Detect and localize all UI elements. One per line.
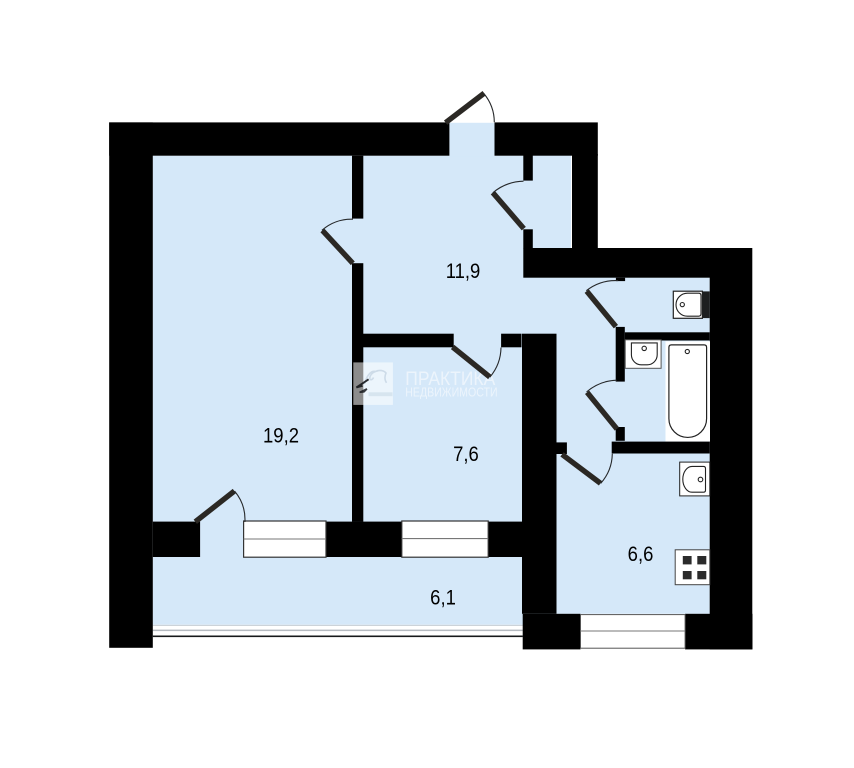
svg-text:7,6: 7,6 bbox=[453, 443, 479, 466]
svg-text:НЕДВИЖИМОСТИ: НЕДВИЖИМОСТИ bbox=[405, 386, 497, 400]
svg-text:11,9: 11,9 bbox=[446, 260, 481, 283]
svg-text:6,1: 6,1 bbox=[430, 587, 456, 610]
svg-text:6,6: 6,6 bbox=[628, 543, 654, 566]
svg-text:19,2: 19,2 bbox=[263, 424, 299, 447]
